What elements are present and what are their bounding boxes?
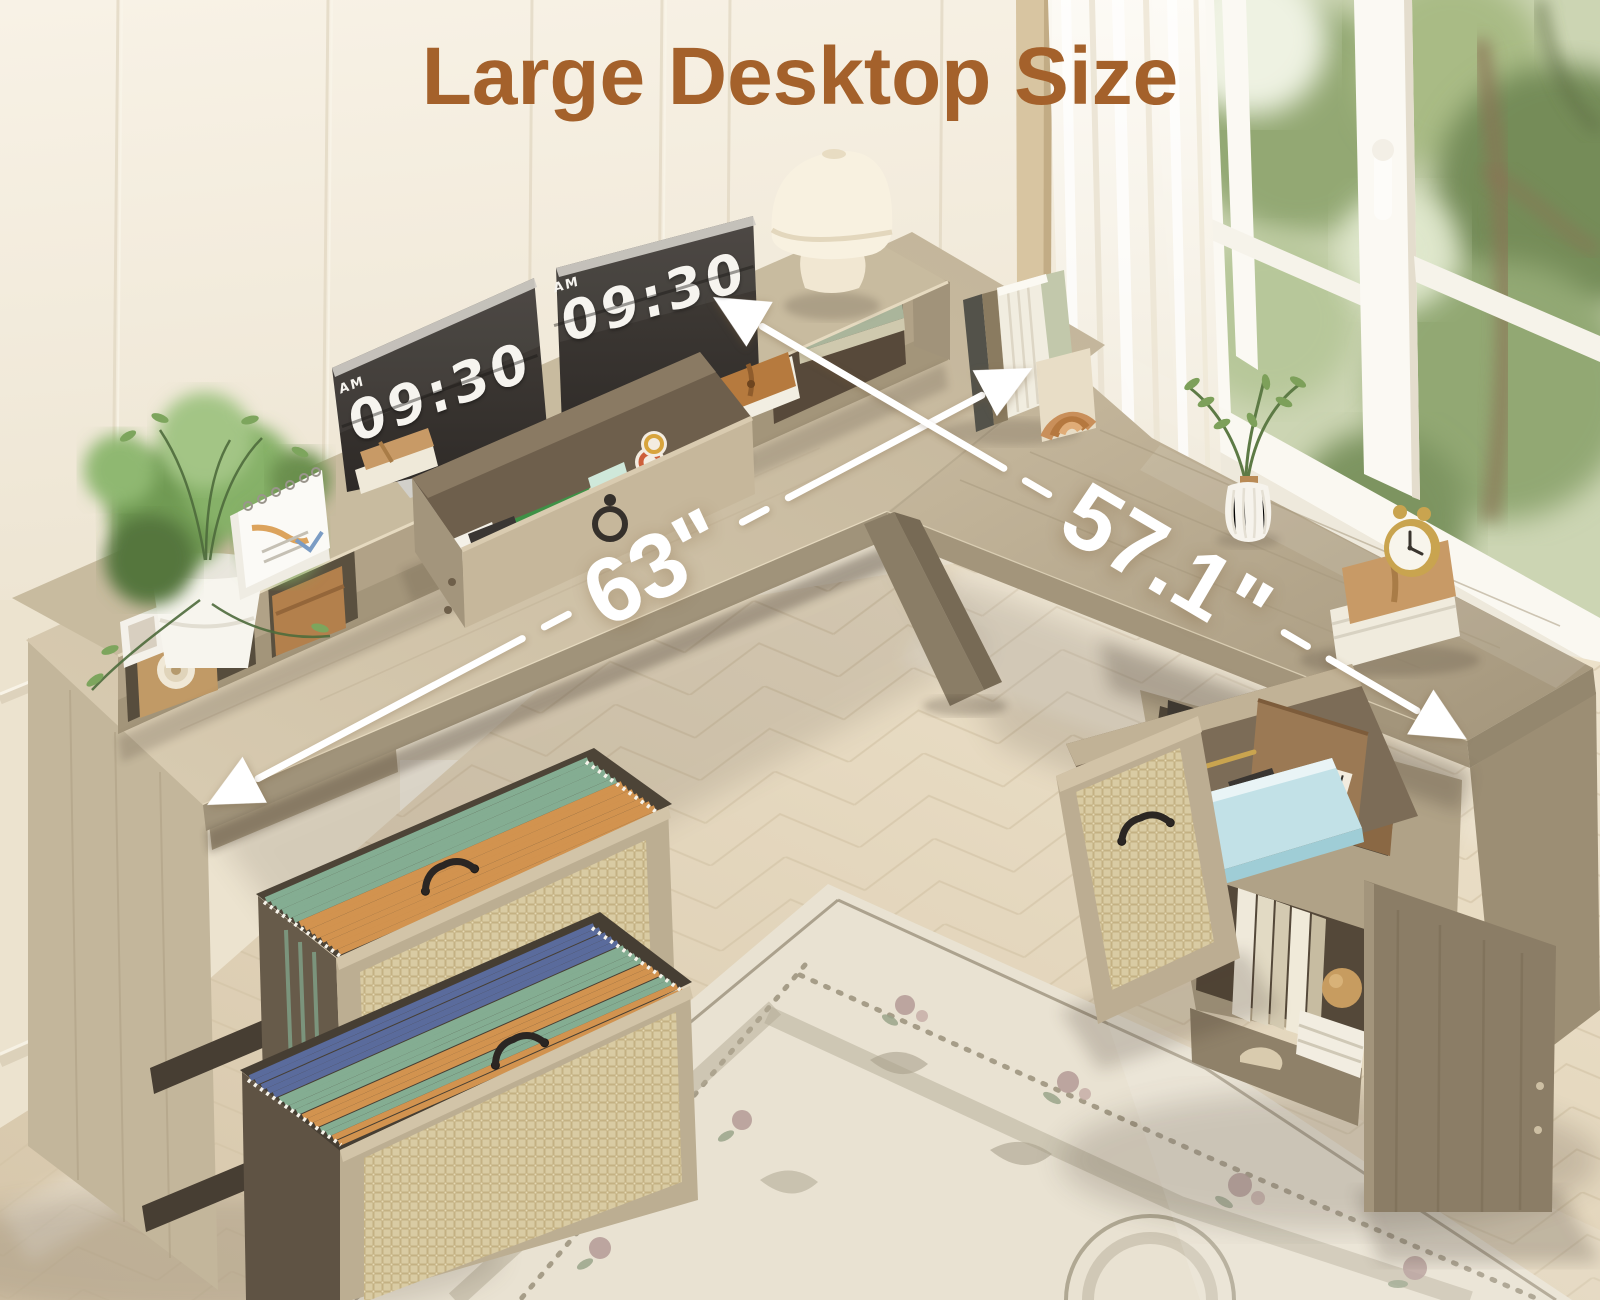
wooden-ball-bookend — [1322, 968, 1362, 1008]
page-title: Large Desktop Size — [0, 30, 1600, 124]
room-scene — [0, 0, 1600, 1300]
door-hinge-screw — [1536, 1082, 1544, 1090]
arch-bookend — [1036, 348, 1096, 442]
door-hinge-screw — [1534, 1126, 1542, 1134]
window-handle — [1374, 152, 1392, 220]
product-hero-image: Large Desktop Size 63" 57.1" AM 09:30 AM… — [0, 0, 1600, 1300]
